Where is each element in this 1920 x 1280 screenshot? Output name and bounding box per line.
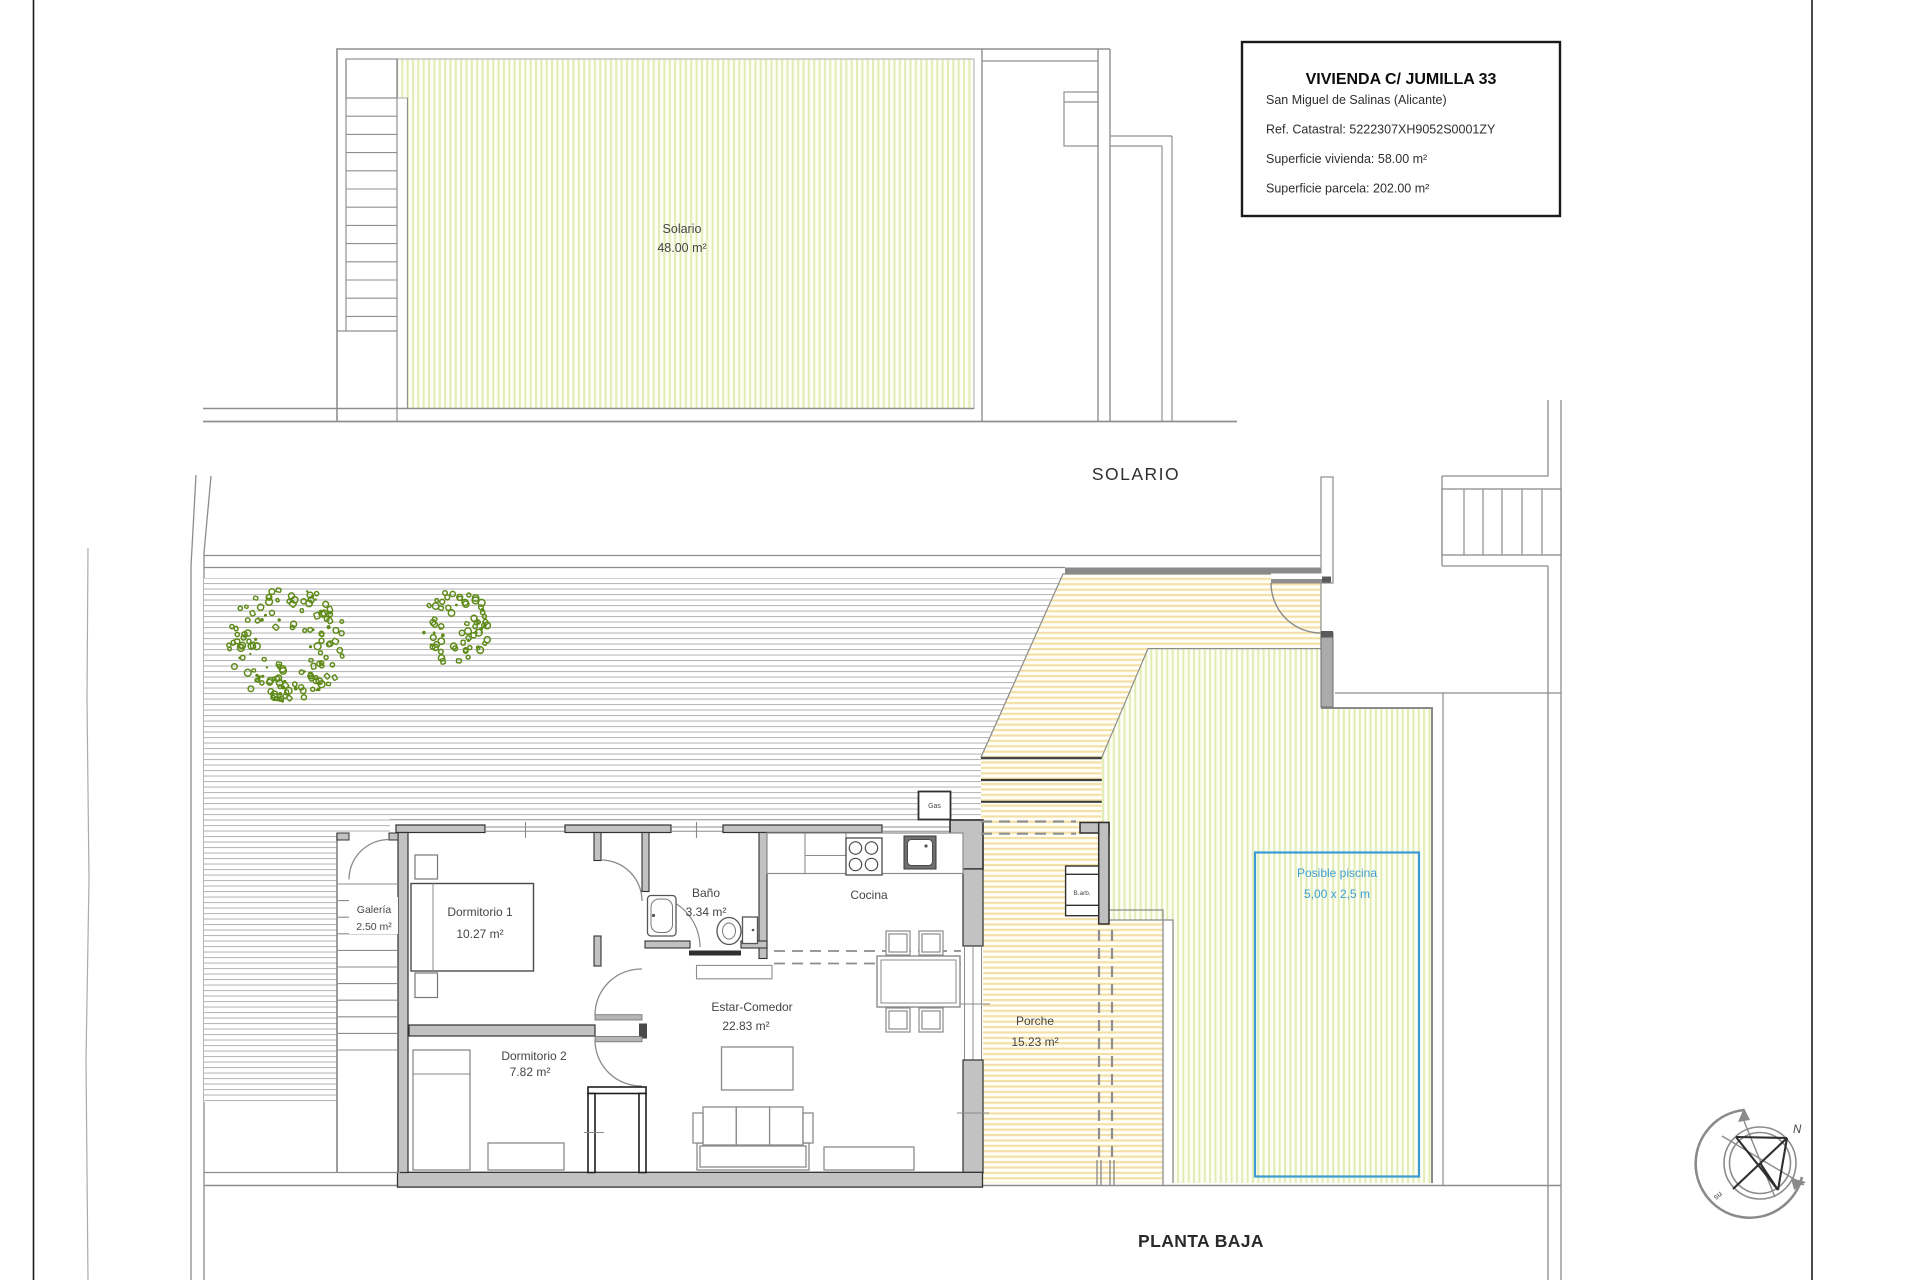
svg-text:48.00 m²: 48.00 m²	[657, 241, 706, 255]
svg-text:Porche: Porche	[1016, 1014, 1054, 1028]
svg-text:Galería: Galería	[357, 904, 392, 916]
svg-text:Dormitorio 1: Dormitorio 1	[447, 905, 513, 919]
svg-text:Gas: Gas	[928, 803, 941, 810]
svg-text:VIVIENDA C/ JUMILLA 33: VIVIENDA C/ JUMILLA 33	[1306, 71, 1497, 88]
svg-text:Dormitorio 2: Dormitorio 2	[501, 1049, 567, 1063]
svg-text:B.arb.: B.arb.	[1073, 890, 1091, 897]
svg-text:7.82 m²: 7.82 m²	[510, 1065, 551, 1079]
svg-text:Solario: Solario	[663, 222, 702, 236]
svg-text:Ref. Catastral: 5222307XH9052S: Ref. Catastral: 5222307XH9052S0001ZY	[1266, 123, 1496, 137]
svg-text:Superficie parcela: 202.00 m²: Superficie parcela: 202.00 m²	[1266, 182, 1429, 196]
svg-text:15.23 m²: 15.23 m²	[1011, 1035, 1058, 1049]
svg-text:10.27 m²: 10.27 m²	[456, 927, 503, 941]
svg-text:2.50 m²: 2.50 m²	[356, 921, 392, 933]
svg-text:22.83 m²: 22.83 m²	[722, 1019, 769, 1033]
svg-text:5,00 x 2,5 m: 5,00 x 2,5 m	[1304, 887, 1370, 901]
svg-text:Superficie vivienda: 58.00 m²: Superficie vivienda: 58.00 m²	[1266, 152, 1427, 166]
svg-text:N: N	[1793, 1124, 1802, 1136]
svg-text:Posible piscina: Posible piscina	[1297, 866, 1377, 880]
svg-text:Estar-Comedor: Estar-Comedor	[711, 1000, 792, 1014]
svg-text:Baño: Baño	[692, 886, 720, 900]
svg-text:SOLARIO: SOLARIO	[1092, 464, 1180, 484]
svg-text:3.34 m²: 3.34 m²	[686, 905, 727, 919]
svg-text:PLANTA BAJA: PLANTA BAJA	[1138, 1231, 1264, 1251]
svg-text:San Miguel de Salinas (Alicant: San Miguel de Salinas (Alicante)	[1266, 93, 1447, 107]
svg-text:Cocina: Cocina	[850, 888, 888, 902]
